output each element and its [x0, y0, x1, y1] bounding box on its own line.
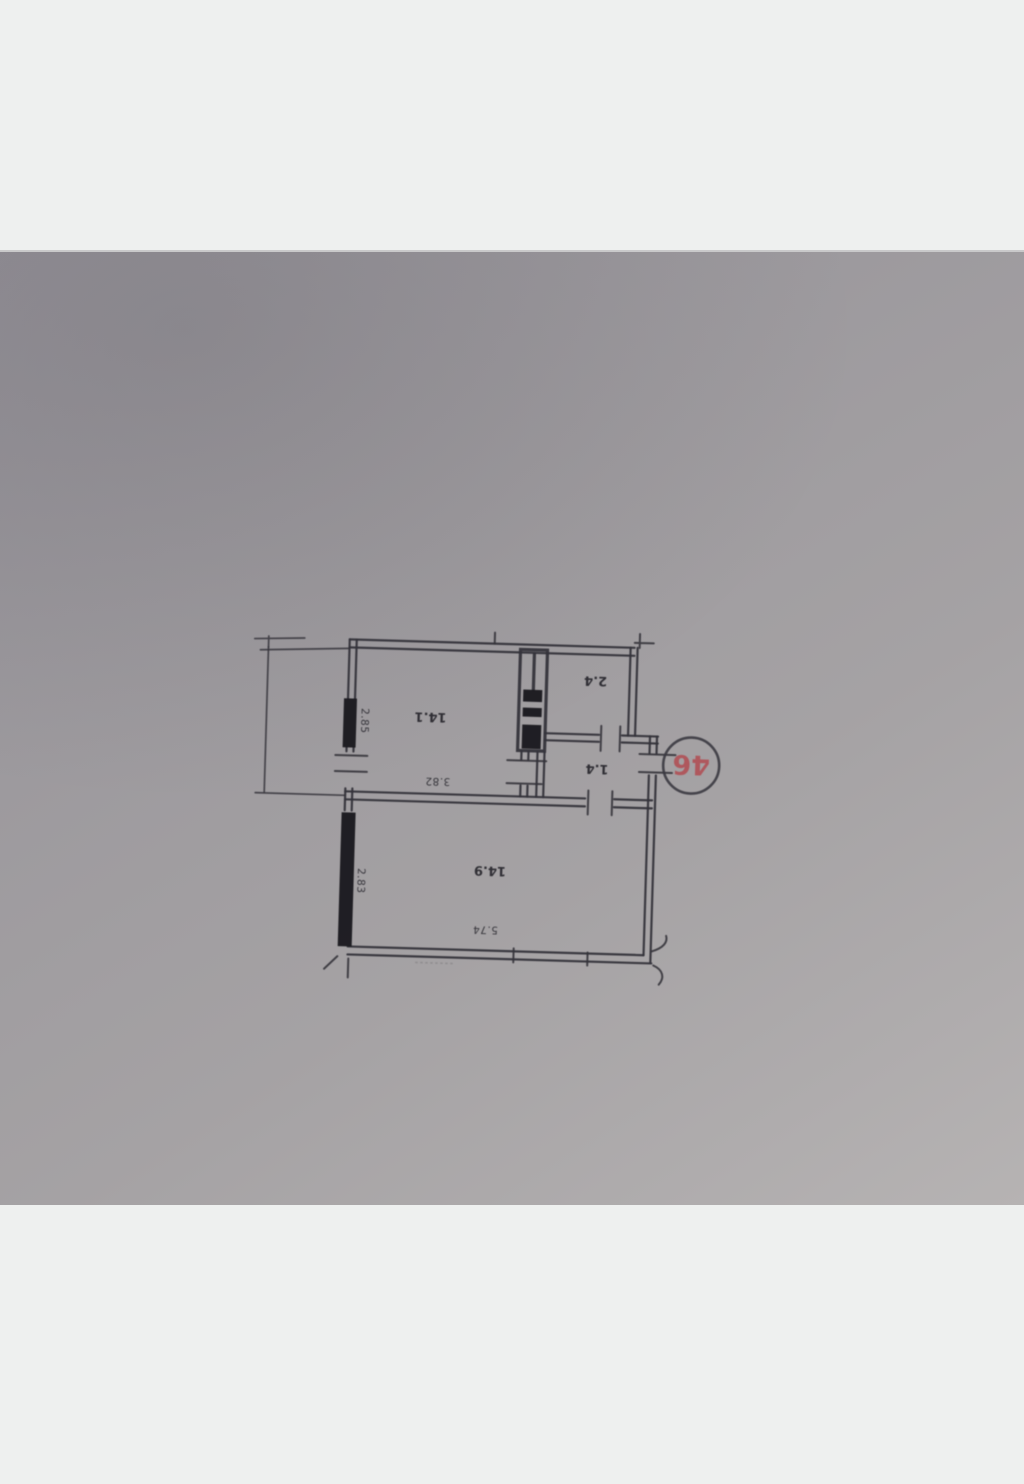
dim-top-room-width: 3.82	[425, 775, 451, 788]
apartment-number: 46	[672, 748, 710, 780]
dim-bottom-room-width: 5.74	[472, 923, 498, 936]
dim-left-lower: 2.83	[354, 868, 367, 894]
outer-walls	[324, 625, 679, 987]
bottom-light-band	[0, 1205, 1024, 1484]
floor-plan-drawing: 46 14.1 2.4 1.4 14.9 2.85 3.82 2.83 5.74	[0, 252, 1024, 1207]
room-bottom-area: 14.9	[474, 862, 507, 878]
floor-plan-photo: 46 14.1 2.4 1.4 14.9 2.85 3.82 2.83 5.74	[0, 250, 1024, 1208]
room-top-left-area: 14.1	[414, 708, 447, 724]
dimension-labels: 2.85 3.82 2.83 5.74	[352, 708, 504, 936]
vent-shaft	[518, 649, 548, 751]
room-middle-area: 1.4	[585, 760, 608, 776]
interior-wall-vertical	[506, 751, 546, 797]
apartment-badge: 46	[662, 737, 720, 795]
top-light-band	[0, 0, 1024, 250]
dim-left-upper: 2.85	[358, 708, 371, 734]
room-labels: 14.1 2.4 1.4 14.9	[410, 667, 612, 881]
room-top-right-area: 2.4	[584, 672, 607, 688]
interior-wall-horizontal	[345, 783, 653, 816]
plan-tilt-group: 46 14.1 2.4 1.4 14.9 2.85 3.82 2.83 5.74	[245, 623, 723, 989]
